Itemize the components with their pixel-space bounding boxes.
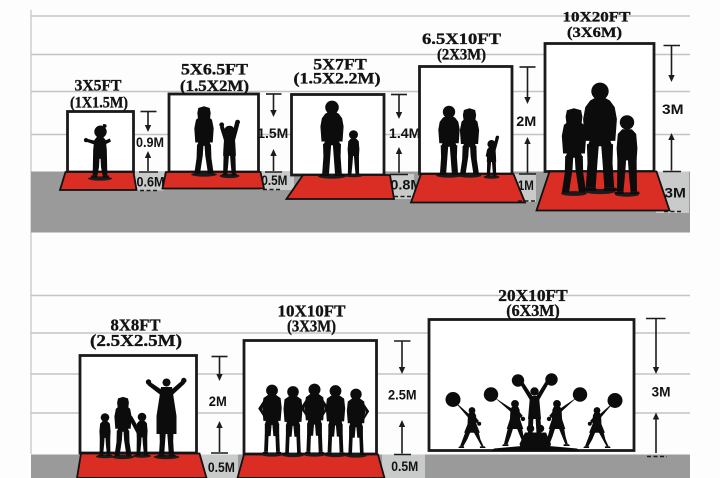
- svg-text:0.6M: 0.6M: [137, 174, 165, 190]
- svg-text:(3X3M): (3X3M): [287, 317, 336, 336]
- svg-text:(2X3M): (2X3M): [437, 46, 486, 63]
- svg-text:2M: 2M: [209, 393, 227, 409]
- svg-text:3M: 3M: [662, 101, 684, 117]
- svg-text:0.5M: 0.5M: [391, 458, 418, 474]
- svg-text:0.5M: 0.5M: [208, 459, 235, 475]
- svg-text:(1X1.5M): (1X1.5M): [70, 95, 128, 112]
- svg-text:10X20FT: 10X20FT: [563, 10, 631, 26]
- svg-text:3M: 3M: [652, 384, 671, 400]
- svg-text:1.5M: 1.5M: [257, 125, 288, 141]
- svg-text:0.9M: 0.9M: [136, 134, 164, 150]
- svg-text:(1.5X2M): (1.5X2M): [180, 78, 249, 95]
- svg-text:3M: 3M: [664, 185, 686, 201]
- svg-text:1.4M: 1.4M: [389, 125, 421, 141]
- svg-text:3X5FT: 3X5FT: [75, 78, 122, 95]
- svg-text:(6X3M): (6X3M): [506, 301, 560, 320]
- svg-text:(1.5X2.2M): (1.5X2.2M): [294, 71, 381, 88]
- svg-text:(3X6M): (3X6M): [567, 25, 622, 41]
- svg-text:5X6.5FT: 5X6.5FT: [181, 62, 248, 79]
- svg-text:0.5M: 0.5M: [261, 172, 287, 188]
- svg-text:2.5M: 2.5M: [388, 387, 417, 403]
- svg-text:(2.5X2.5M): (2.5X2.5M): [90, 331, 182, 350]
- svg-text:1M: 1M: [518, 177, 534, 193]
- svg-text:2M: 2M: [516, 113, 536, 129]
